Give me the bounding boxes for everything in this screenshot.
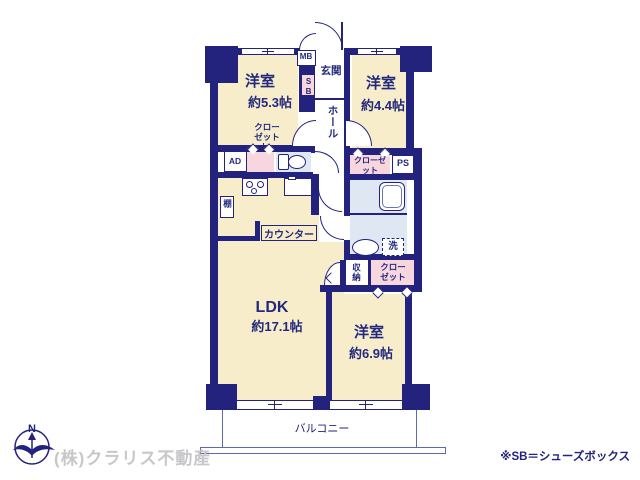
kitchen-sink [284,178,312,196]
wall-bottom-center-stub [313,396,330,410]
floor-plan-canvas: MB SB AD PS 棚 カウンター 洗 洋室 約5.3帖 洋室 約4.4帖 … [0,0,640,480]
stove-burner [257,181,264,188]
washer-label: 洗 [388,242,398,252]
window-mark [376,48,377,55]
closet3-label: クローゼット [377,262,409,282]
storage-label: 収納 [352,263,361,282]
bedroom1-name: 洋室 [245,74,275,91]
wall-right-outer [414,148,422,288]
meter-box-door-arc [299,33,316,50]
entrance-step-line [315,98,344,100]
shelf-label: 棚 [223,199,232,209]
window-mark [267,48,268,55]
wall-left [210,48,218,400]
hall-label: ホール [327,105,338,140]
entrance-door-leaf [341,22,343,50]
ad-label: AD [229,157,241,166]
bathtub-inner [382,185,402,208]
ldk-size: 約17.1帖 [251,320,302,334]
wall-storage-left [340,260,346,287]
closet1-label: クローゼット [251,122,283,142]
bedroom2-size: 約4.4帖 [361,99,405,113]
wall-right-upper [406,72,414,148]
counter-edge-h [218,236,260,241]
window-mark [274,400,275,410]
compass: N [10,420,58,470]
shoe-box-label: SB [304,77,312,97]
pipe-space-label: PS [397,159,409,169]
counter-edge-v [255,221,260,241]
legend-note: ※SB＝シューズボックス [500,448,630,464]
wall-storage-divider [368,260,371,287]
bedroom3-name: 洋室 [354,325,384,342]
toilet-bowl [288,155,306,169]
corner-block-bl [206,384,237,410]
wall-bath-partition [350,213,407,215]
stove-burner [251,188,257,194]
entrance-label: 玄関 [321,66,342,78]
balcony-rail-right [416,410,417,447]
bedroom1-size: 約5.3帖 [248,96,292,110]
stove-burner [246,181,253,188]
bedroom3-size: 約6.9帖 [349,347,393,361]
balcony-slab [200,447,446,454]
corner-block-tl [205,46,238,83]
company-watermark: (株)クラリス不動産 [54,444,211,469]
wall-top-c [344,48,358,55]
closet1-leader [263,143,264,152]
wash-basin [352,239,379,256]
ldk-name: LDK [256,299,289,317]
closet2-label: クローゼット [354,156,386,175]
entrance-door-arc [315,22,343,50]
closet1-fill [246,151,274,172]
balcony-label: バルコニー [295,423,350,435]
counter-label-box: カウンター [261,225,317,241]
entrance-hall-floor [315,55,344,242]
balcony-rail-left [222,410,223,447]
meter-box-label: MB [300,53,312,62]
window-mark [365,400,366,410]
bedroom2-name: 洋室 [366,76,396,93]
sink-faucet [288,176,296,180]
wall-kitchen-right [311,174,319,215]
wall-bedroom3-left [326,292,332,400]
corner-block-tr [400,46,432,72]
corner-block-br [402,384,430,410]
